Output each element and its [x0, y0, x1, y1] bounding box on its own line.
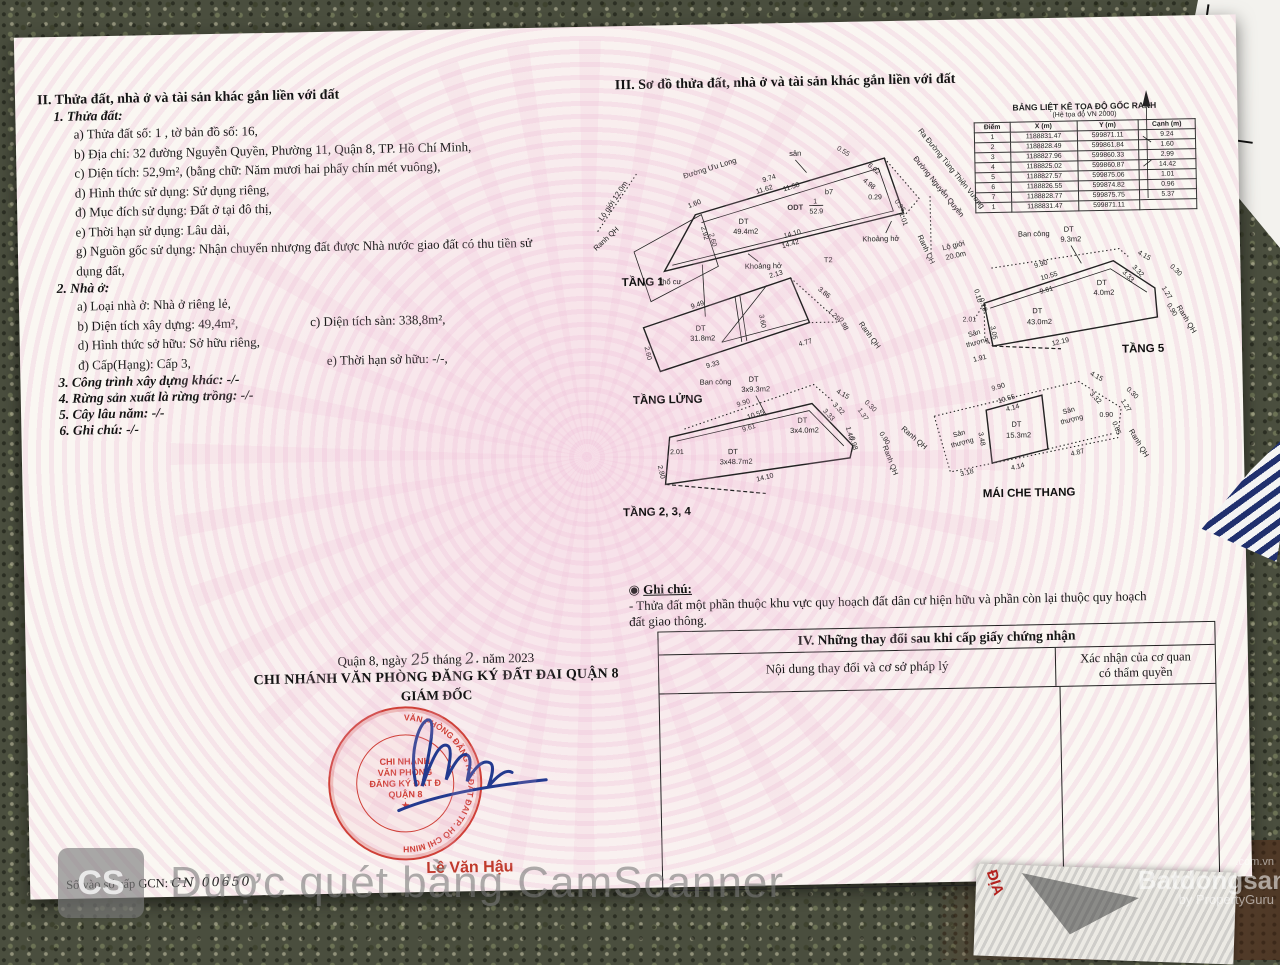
svg-text:2.01: 2.01 [963, 316, 977, 323]
svg-text:0.65: 0.65 [1110, 421, 1121, 436]
svg-text:10.55: 10.55 [1040, 271, 1059, 283]
svg-text:Ranh QH: Ranh QH [1175, 303, 1199, 334]
svg-text:52.9: 52.9 [809, 208, 823, 215]
plan-tang-5: Ban công DT 9.3m2 9.90 10.55 9.61 DT 4.0… [961, 222, 1199, 364]
background-paper-pattern [1011, 873, 1139, 947]
svg-text:1.60: 1.60 [687, 199, 702, 210]
svg-text:Ranh QH: Ranh QH [916, 233, 937, 265]
svg-text:DT: DT [695, 324, 706, 333]
svg-text:Thổ cư: Thổ cư [658, 277, 682, 286]
svg-text:Sân: Sân [1062, 406, 1076, 416]
svg-text:0.30: 0.30 [1168, 263, 1183, 278]
svg-text:DT: DT [748, 375, 759, 384]
svg-text:10.55: 10.55 [746, 409, 765, 421]
svg-text:12.19: 12.19 [1051, 337, 1070, 348]
svg-text:MÁI CHE THANG: MÁI CHE THANG [983, 486, 1076, 501]
svg-text:0.90: 0.90 [1099, 412, 1113, 419]
svg-text:3x48.7m2: 3x48.7m2 [720, 457, 753, 467]
street-labels-right: Ra Đường Tùng Thiện Vương Đường Nguyễn Q… [911, 125, 988, 265]
bullet-icon: ◉ [628, 582, 640, 597]
svg-text:4.14: 4.14 [1010, 462, 1025, 472]
svg-text:DT: DT [1097, 278, 1108, 287]
svg-text:Sân: Sân [967, 329, 981, 339]
handwritten-month: 2. [464, 648, 480, 668]
handwritten-day: 25 [409, 649, 430, 669]
svg-text:15.3m2: 15.3m2 [1006, 430, 1031, 439]
svg-text:3.32: 3.32 [1088, 391, 1102, 406]
svg-text:4.87: 4.87 [1070, 448, 1085, 458]
svg-text:9.33: 9.33 [705, 360, 720, 370]
svg-text:1: 1 [813, 198, 817, 205]
batdongsan-watermark: .com.vn Batdongsan by PropertyGuru [1138, 856, 1274, 907]
svg-text:4.0m2: 4.0m2 [1093, 288, 1114, 297]
svg-text:1.37: 1.37 [856, 407, 870, 422]
svg-text:43.0m2: 43.0m2 [1027, 317, 1052, 326]
svg-text:3.60: 3.60 [757, 314, 767, 329]
svg-text:4.15: 4.15 [1089, 370, 1104, 383]
svg-text:3.05: 3.05 [988, 325, 998, 340]
svg-text:31.8m2: 31.8m2 [690, 333, 715, 342]
svg-text:Ban công: Ban công [1018, 229, 1050, 239]
svg-text:49.4m2: 49.4m2 [733, 227, 758, 236]
svg-text:9.61: 9.61 [1039, 285, 1054, 296]
svg-text:Đường Ưu Long: Đường Ưu Long [682, 156, 737, 181]
svg-text:4.15: 4.15 [835, 388, 850, 401]
svg-text:Ranh QH: Ranh QH [592, 225, 621, 253]
ghi-chu-title: Ghi chú: [643, 581, 692, 597]
svg-text:Sân: Sân [952, 429, 966, 439]
svg-text:3x9.3m2: 3x9.3m2 [741, 384, 770, 394]
svg-text:4.15: 4.15 [1136, 249, 1151, 262]
svg-text:DT: DT [728, 447, 739, 456]
svg-text:Đường Nguyễn Quyền: Đường Nguyễn Quyền [911, 154, 966, 219]
svg-text:sân: sân [789, 149, 801, 158]
svg-text:DT: DT [738, 217, 749, 226]
svg-text:DT: DT [797, 416, 808, 425]
svg-text:3.86: 3.86 [816, 286, 831, 300]
svg-text:TẦNG 2, 3, 4: TẦNG 2, 3, 4 [623, 505, 692, 519]
background-paper-red-text: ĐỊA [983, 868, 1007, 898]
svg-text:Ranh QH: Ranh QH [1127, 427, 1151, 458]
svg-text:2.60: 2.60 [707, 233, 717, 248]
svg-text:T2: T2 [824, 255, 833, 264]
svg-text:9.74: 9.74 [762, 174, 777, 185]
svg-text:Khoảng hở: Khoảng hở [862, 234, 899, 244]
svg-text:0.98: 0.98 [848, 436, 858, 451]
svg-text:1.27: 1.27 [1160, 285, 1173, 300]
certificate-page: II. Thửa đất, nhà ở và tài sản khác gắn … [14, 14, 1252, 899]
svg-text:3.48: 3.48 [976, 432, 986, 447]
section-4-col1: Nội dung thay đổi và cơ sở pháp lý [659, 648, 1057, 694]
plan-mai-che-thang: 9.90 10.55 4.14 DT 15.3m2 Sân thượng 3.4… [933, 369, 1151, 501]
svg-text:3x4.0m2: 3x4.0m2 [790, 425, 819, 435]
camscanner-watermark-text: Được quét bằng CamScanner [170, 858, 784, 908]
svg-text:6.02: 6.02 [866, 162, 881, 176]
plan-tang-1: Đường Ưu Long sân 9.74 11.62 11.58 0.55 … [590, 144, 921, 319]
svg-text:TẦNG LỬNG: TẦNG LỬNG [633, 393, 703, 407]
svg-text:3.18: 3.18 [960, 468, 975, 478]
svg-text:DT: DT [1011, 420, 1022, 429]
svg-text:Ban công: Ban công [700, 377, 732, 387]
svg-text:ODT: ODT [787, 203, 803, 212]
svg-text:Lộ giới 12.0m: Lộ giới 12.0m [597, 179, 630, 222]
svg-text:9.3m2: 9.3m2 [1060, 234, 1081, 243]
svg-text:Ranh QH: Ranh QH [881, 444, 901, 476]
camscanner-logo-icon: CS [58, 848, 144, 918]
svg-text:1.27: 1.27 [1119, 398, 1132, 413]
svg-text:DT: DT [1064, 224, 1075, 233]
svg-text:0.30: 0.30 [1125, 386, 1140, 401]
batdongsan-logo-text: Batdongsan [1138, 868, 1280, 892]
svg-text:0.18: 0.18 [977, 297, 988, 312]
svg-text:2.80: 2.80 [656, 465, 666, 480]
svg-text:1.91: 1.91 [972, 354, 987, 364]
svg-text:9.61: 9.61 [741, 423, 756, 434]
svg-text:1.01: 1.01 [897, 212, 908, 227]
svg-text:TẦNG 5: TẦNG 5 [1122, 342, 1165, 356]
svg-text:b7: b7 [825, 187, 834, 196]
north-arrow-icon [1142, 90, 1152, 198]
svg-text:0.55: 0.55 [835, 145, 850, 158]
svg-text:14.42: 14.42 [781, 239, 800, 250]
svg-text:Khoảng hở: Khoảng hở [745, 261, 782, 271]
svg-text:14.10: 14.10 [756, 472, 775, 483]
svg-text:0.29: 0.29 [868, 194, 882, 201]
svg-text:9.90: 9.90 [991, 382, 1006, 393]
svg-text:2.13: 2.13 [769, 269, 784, 280]
svg-text:2.01: 2.01 [670, 449, 684, 456]
svg-text:0.98: 0.98 [836, 317, 849, 332]
svg-text:4.98: 4.98 [861, 177, 876, 191]
photo-of-land-certificate: { "colors":{"stamp_red":"#cf4038","signa… [0, 0, 1280, 960]
svg-text:Ranh QH: Ranh QH [900, 424, 930, 451]
svg-text:11.58: 11.58 [782, 182, 800, 194]
svg-text:Ranh QH: Ranh QH [857, 320, 883, 351]
section-4-col2: Xác nhận của cơ quancó thẩm quyền [1056, 645, 1216, 686]
svg-text:4.77: 4.77 [798, 338, 813, 348]
camscanner-watermark: CS Được quét bằng CamScanner [58, 848, 784, 918]
director-signature [376, 687, 569, 841]
svg-text:DT: DT [1032, 306, 1043, 315]
